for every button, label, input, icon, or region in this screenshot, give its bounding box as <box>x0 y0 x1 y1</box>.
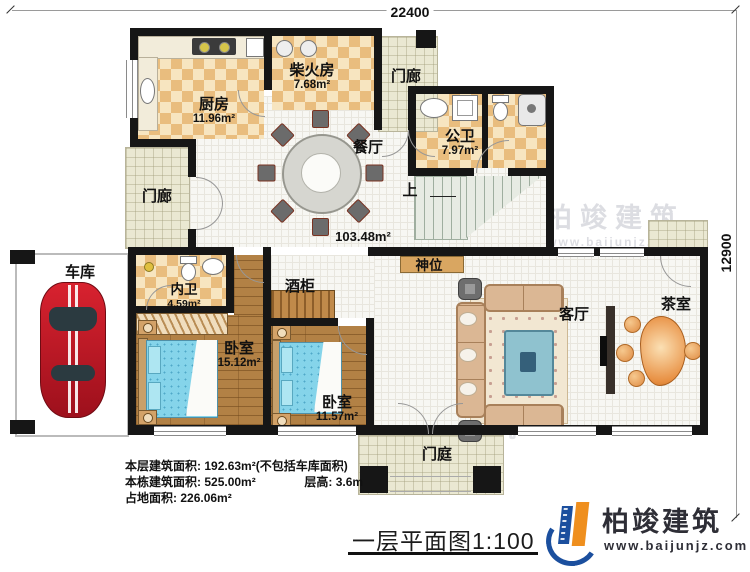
info-value: 226.06m² <box>180 491 231 505</box>
wall-segment <box>130 139 194 147</box>
title-underline <box>348 552 538 555</box>
tea-stool <box>624 316 641 333</box>
brand-url[interactable]: www.baijunjz.com <box>604 538 748 553</box>
window <box>518 426 596 436</box>
fridge <box>246 38 264 57</box>
garage-pillar <box>10 250 35 264</box>
wall-segment <box>128 247 136 435</box>
wall-segment <box>130 28 382 36</box>
dimension-right-label: 12900 <box>718 219 734 287</box>
window <box>154 426 226 436</box>
wall-segment <box>374 28 382 130</box>
room-area: 7.97m² <box>442 145 478 158</box>
nightstand <box>138 320 157 335</box>
entrance-pillar <box>473 466 501 493</box>
room-name: 卧室 <box>316 394 358 411</box>
wall-segment <box>368 247 708 256</box>
wine-cabinet-label: 酒柜 <box>285 278 315 295</box>
firewood-stove-pot <box>300 40 317 57</box>
nightstand <box>138 410 157 425</box>
wall-segment <box>264 36 272 90</box>
sofa-pillow <box>459 312 477 326</box>
toilet-bowl <box>181 263 196 281</box>
room-label-bedroom-second: 卧室 11.57m² <box>316 394 358 424</box>
wall-segment <box>408 86 554 94</box>
info-label: 层高: <box>304 475 332 489</box>
stairs-arrow <box>430 196 456 197</box>
wall-segment <box>408 168 474 176</box>
tv-cabinet <box>606 306 615 394</box>
dining-chair <box>312 218 329 236</box>
wall-segment <box>226 247 234 313</box>
floor-drain <box>144 262 154 272</box>
bed-pillow <box>148 346 161 374</box>
room-name: 门廊 <box>142 188 172 205</box>
bath-sink <box>420 98 448 118</box>
building-info: 本层建筑面积: 192.63m²(不包括车库面积) 本栋建筑面积: 525.00… <box>125 458 363 506</box>
stove <box>192 38 236 55</box>
wall-segment <box>508 168 554 176</box>
wall-pillar <box>416 30 436 48</box>
room-label-kitchen: 厨房 11.96m² <box>193 96 235 126</box>
tea-stool <box>616 344 634 362</box>
wall-segment <box>128 247 234 255</box>
area-value: 103.48m² <box>335 229 391 244</box>
dining-table-center <box>301 153 341 193</box>
dining-chair <box>312 110 329 128</box>
wall-segment <box>263 247 271 425</box>
tea-stool <box>628 370 645 387</box>
bath-sink <box>202 258 224 275</box>
window <box>558 248 594 257</box>
room-label-bedroom-master: 卧室 15.12m² <box>218 340 261 370</box>
room-name: 门庭 <box>422 446 452 463</box>
room-label-dining: 餐厅 <box>353 139 383 156</box>
sofa-pillow <box>459 382 477 396</box>
washing-machine <box>452 95 478 121</box>
bed-pillow <box>281 347 293 373</box>
room-name: 厨房 <box>193 96 235 113</box>
room-label-garage: 车库 <box>65 264 95 281</box>
wall-segment <box>366 318 374 435</box>
garage-pillar <box>10 420 35 434</box>
coffee-table <box>504 330 554 396</box>
entrance-steps <box>390 476 471 492</box>
dining-chair <box>366 165 384 182</box>
toilet-bowl <box>493 102 508 121</box>
room-label-living: 客厅 <box>559 306 589 323</box>
shrine-label: 神位 <box>416 258 443 274</box>
room-name: 公卫 <box>442 128 478 145</box>
page-title: 一层平面图1:100 <box>352 522 535 556</box>
dimension-top-label: 22400 <box>387 4 434 20</box>
info-line-2: 本栋建筑面积: 525.00m² 层高: 3.6m <box>125 474 363 490</box>
stairs-up-label: 上 <box>402 182 417 199</box>
room-label-porch-top: 门廊 <box>391 68 421 85</box>
info-label: 本栋建筑面积: <box>125 475 201 489</box>
tv <box>600 336 607 366</box>
room-label-public-bath: 公卫 7.97m² <box>442 128 478 158</box>
bed-pillow <box>148 382 161 410</box>
nightstand <box>272 325 291 340</box>
room-label-entrance: 门庭 <box>422 446 452 463</box>
sofa-pillow <box>459 348 477 362</box>
info-value: 192.63m²(不包括车库面积) <box>204 459 347 473</box>
window <box>612 426 692 436</box>
room-name: 神位 <box>416 258 443 274</box>
side-table <box>458 278 482 300</box>
info-label: 占地面积: <box>125 491 177 505</box>
car-stripes <box>68 285 78 413</box>
window <box>278 426 356 436</box>
floor-plan-canvas: 22400 12900 柏竣建筑 www.baijunjz.com 柏竣建筑 w… <box>0 0 750 572</box>
room-name: 上 <box>402 182 417 199</box>
dining-chair <box>258 165 276 182</box>
info-value: 525.00m² <box>204 475 255 489</box>
burner <box>199 42 210 53</box>
dimension-line-top <box>12 10 736 11</box>
bed-pillow <box>281 380 293 406</box>
room-name: 酒柜 <box>285 278 315 295</box>
bed-master <box>138 338 218 418</box>
firewood-stove-pot <box>276 40 293 57</box>
burner <box>219 42 230 53</box>
wall-segment <box>700 247 708 435</box>
hall-area-label: 103.48m² <box>335 230 391 245</box>
brand-logo-icon <box>546 502 596 558</box>
room-label-firewood: 柴火房 7.68m² <box>289 62 334 92</box>
wall-segment <box>271 318 338 326</box>
sofa-top <box>484 284 564 312</box>
shower <box>518 94 546 126</box>
info-line-3: 占地面积: 226.06m² <box>125 490 363 506</box>
room-area: 15.12m² <box>218 357 261 370</box>
room-label-porch-left: 门廊 <box>142 188 172 205</box>
brand-name: 柏竣建筑 <box>602 500 722 539</box>
window <box>126 60 138 118</box>
room-area: 7.68m² <box>289 79 334 92</box>
room-name: 内卫 <box>167 282 200 298</box>
room-label-tea: 茶室 <box>661 296 691 313</box>
room-name: 卧室 <box>218 340 261 357</box>
entrance-pillar <box>360 466 388 493</box>
room-name: 车库 <box>65 264 95 281</box>
info-label: 本层建筑面积: <box>125 459 201 473</box>
kitchen-sink <box>140 78 155 104</box>
car-windshield <box>49 307 97 331</box>
dimension-line-right <box>736 10 737 518</box>
room-name: 柴火房 <box>289 62 334 79</box>
car-rear-window <box>51 365 95 381</box>
brand-logo[interactable]: 柏竣建筑 www.baijunjz.com <box>546 498 746 566</box>
wall-segment <box>188 139 196 177</box>
info-line-1: 本层建筑面积: 192.63m²(不包括车库面积) <box>125 458 363 474</box>
stairs <box>414 176 468 240</box>
room-area: 11.96m² <box>193 113 235 126</box>
room-area: 11.57m² <box>316 411 358 424</box>
room-area: 4.59m² <box>167 298 200 310</box>
room-name: 客厅 <box>559 306 589 323</box>
room-name: 餐厅 <box>353 139 383 156</box>
room-name: 门廊 <box>391 68 421 85</box>
window <box>600 248 644 257</box>
room-label-inner-bath: 内卫 4.59m² <box>167 282 200 310</box>
info-value: 3.6m <box>336 475 363 489</box>
room-name: 茶室 <box>661 296 691 313</box>
car <box>40 282 106 418</box>
